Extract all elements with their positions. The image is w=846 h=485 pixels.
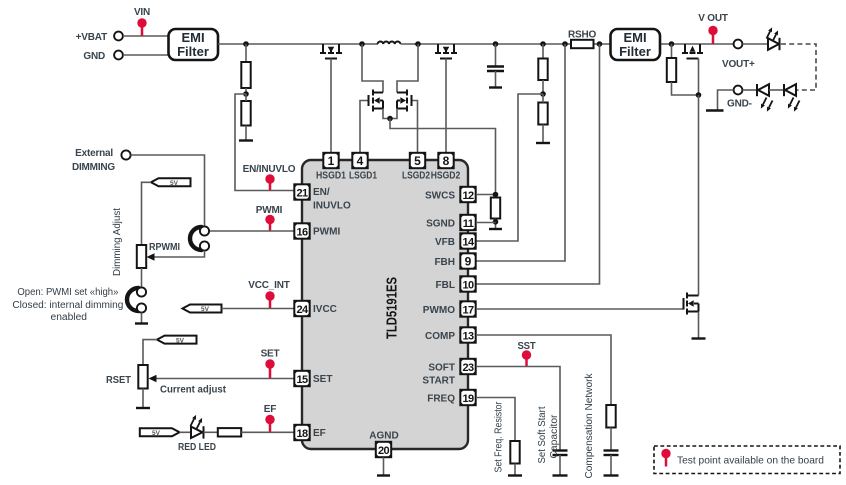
svg-text:EN/INUVLO: EN/INUVLO (243, 164, 296, 175)
svg-text:SET: SET (313, 374, 332, 385)
svg-text:11: 11 (463, 218, 474, 230)
svg-text:VFB: VFB (435, 237, 455, 248)
svg-text:1: 1 (328, 154, 335, 168)
svg-text:INUVLO: INUVLO (313, 201, 351, 212)
svg-text:17: 17 (462, 304, 474, 316)
svg-text:Filter: Filter (177, 44, 209, 59)
svg-text:20: 20 (378, 445, 390, 457)
svg-text:IVCC: IVCC (313, 304, 337, 315)
svg-text:RPWMI: RPWMI (149, 242, 180, 253)
svg-text:FBL: FBL (436, 280, 455, 291)
svg-text:VIN: VIN (134, 7, 150, 18)
svg-text:16: 16 (296, 226, 308, 238)
svg-text:21: 21 (296, 187, 308, 199)
svg-text:RSET: RSET (106, 375, 131, 386)
svg-text:8: 8 (443, 154, 450, 168)
svg-text:VCC_INT: VCC_INT (248, 280, 289, 291)
svg-text:AGND: AGND (369, 431, 398, 442)
svg-text:24: 24 (296, 304, 309, 316)
svg-text:Capacitor: Capacitor (549, 414, 560, 459)
svg-text:COMP: COMP (425, 331, 455, 342)
svg-text:HSGD2: HSGD2 (431, 171, 461, 182)
svg-text:PWMI: PWMI (313, 227, 340, 238)
svg-text:FREQ: FREQ (427, 394, 455, 405)
svg-text:10: 10 (462, 279, 474, 291)
svg-text:5V: 5V (170, 180, 179, 187)
svg-text:SGND: SGND (426, 219, 455, 230)
svg-text:External: External (75, 148, 113, 159)
svg-text:RED LED: RED LED (178, 442, 216, 453)
svg-text:DIMMING: DIMMING (72, 162, 115, 173)
svg-text:Set Freq. Resistor: Set Freq. Resistor (494, 401, 505, 473)
svg-text:Filter: Filter (619, 44, 651, 59)
svg-text:5V: 5V (176, 337, 185, 344)
svg-text:SET: SET (261, 349, 280, 360)
svg-text:PWMO: PWMO (423, 305, 455, 316)
svg-text:FBH: FBH (434, 257, 455, 268)
svg-text:START: START (422, 376, 455, 387)
svg-text:Dimming Adjust: Dimming Adjust (112, 208, 123, 276)
svg-text:GND-: GND- (727, 99, 752, 110)
svg-text:5V: 5V (201, 306, 210, 313)
svg-text:4: 4 (357, 154, 364, 168)
svg-text:SOFT: SOFT (428, 363, 455, 374)
svg-text:14: 14 (462, 236, 475, 248)
svg-text:enabled: enabled (51, 312, 88, 323)
svg-text:5V: 5V (152, 430, 161, 437)
svg-text:12: 12 (462, 190, 474, 202)
svg-text:SWCS: SWCS (425, 191, 455, 202)
svg-text:Open: PWMI set «high»: Open: PWMI set «high» (17, 287, 118, 298)
svg-text:Current adjust: Current adjust (160, 385, 227, 396)
svg-text:EF: EF (313, 428, 326, 439)
svg-text:23: 23 (462, 362, 474, 374)
svg-text:18: 18 (296, 428, 308, 440)
svg-text:EMI: EMI (623, 30, 646, 45)
svg-text:9: 9 (465, 254, 472, 268)
svg-text:Compensation Network: Compensation Network (584, 372, 595, 478)
svg-text:EMI: EMI (181, 30, 204, 45)
svg-text:GND: GND (83, 51, 105, 62)
svg-text:Test point available on the bo: Test point available on the board (677, 456, 824, 467)
svg-text:EF: EF (264, 404, 276, 415)
svg-text:LSGD1: LSGD1 (349, 171, 377, 182)
svg-text:15: 15 (296, 374, 308, 386)
svg-text:19: 19 (462, 393, 474, 405)
svg-text:V OUT: V OUT (698, 13, 728, 24)
svg-text:LSGD2: LSGD2 (402, 171, 430, 182)
svg-text:13: 13 (462, 330, 474, 342)
svg-text:Set Soft Start: Set Soft Start (537, 406, 548, 463)
svg-text:TLD5191ES: TLD5191ES (384, 277, 401, 339)
svg-text:+VBAT: +VBAT (76, 32, 107, 43)
svg-text:HSGD1: HSGD1 (316, 171, 346, 182)
svg-text:VOUT+: VOUT+ (722, 59, 755, 70)
svg-text:EN/: EN/ (313, 187, 330, 198)
svg-text:PWMI: PWMI (256, 205, 283, 216)
svg-text:Closed: internal dimming: Closed: internal dimming (12, 300, 123, 311)
svg-text:5: 5 (414, 154, 421, 168)
